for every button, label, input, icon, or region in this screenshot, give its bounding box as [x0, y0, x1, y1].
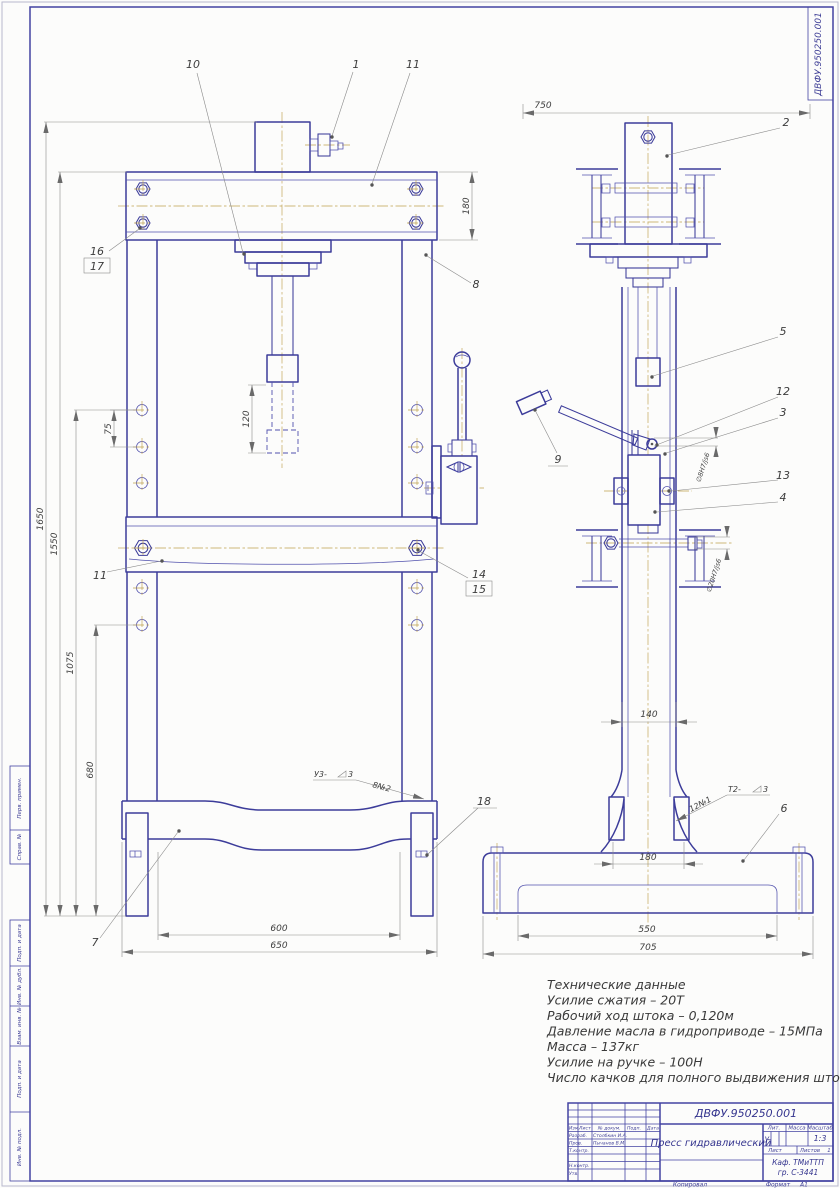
- mass-label: Масса: [788, 1126, 805, 1132]
- row-developed: Разраб.: [569, 1133, 587, 1139]
- scale-label: Масштаб: [807, 1126, 833, 1132]
- dim-overall-top: 750: [534, 101, 551, 111]
- callout-3: 3: [780, 406, 787, 419]
- tech-data-title: Технические данные: [547, 977, 686, 992]
- stamp-podp-data-1: Подп. и дата: [17, 924, 23, 962]
- drawing-sheet: ДВФУ.950250.001 Перв. примен. Справ. № П…: [0, 0, 840, 1188]
- weld-front: У3- 3 8№2: [313, 770, 424, 799]
- tech-data-line-4: Масса – 137кг: [547, 1039, 639, 1054]
- callout-5: 5: [780, 325, 787, 338]
- front-base: [122, 801, 437, 916]
- side-cylinder: [625, 123, 672, 244]
- callout-15: 15: [472, 583, 486, 596]
- org-line-2: гр. С-3441: [778, 1168, 819, 1177]
- dim-hole-pitch: 75: [104, 423, 114, 435]
- front-columns: [127, 240, 432, 801]
- weld-front-note: 8№2: [371, 780, 391, 793]
- dim-frame-height: 1550: [50, 532, 60, 555]
- callout-7: 7: [92, 936, 99, 949]
- callout-16: 16: [90, 245, 104, 258]
- row-tcontrol: Т.контр.: [569, 1148, 589, 1154]
- callout-13: 13: [776, 469, 790, 482]
- side-view: [483, 116, 813, 926]
- title-block-doc-number: ДВФУ.950250.001: [694, 1107, 797, 1120]
- weld-side: Т2- 3 12№1: [676, 785, 770, 821]
- weld-front-size: 3: [348, 770, 353, 779]
- row-checked: Пров.: [569, 1141, 582, 1147]
- weld-annotations: У3- 3 8№2 Т2- 3 12№1: [313, 770, 770, 821]
- title-block-title: Пресс гидравлический: [651, 1138, 772, 1149]
- dim-column-depth: 140: [640, 710, 657, 720]
- dim-base-overall: 705: [639, 943, 656, 953]
- lit-value: у: [764, 1134, 770, 1143]
- tech-data-line-5: Усилие на ручке – 100Н: [547, 1055, 703, 1070]
- tech-data: Технические данные Усилие сжатия – 20Т Р…: [546, 977, 840, 1085]
- side-column: [611, 287, 687, 797]
- side-pump: [516, 388, 674, 533]
- front-centerlines: [118, 112, 484, 548]
- sheet-label: Лист: [767, 1148, 783, 1154]
- lit-label: Лит.: [767, 1126, 780, 1132]
- stamp-sprav-no: Справ. №: [17, 833, 23, 860]
- stamp-vzam-inv: Взам. инв. №: [17, 1007, 23, 1045]
- sheets-value: 1: [827, 1148, 830, 1154]
- dim-pedestal-width: 180: [639, 853, 656, 863]
- dim-base-inner: 550: [638, 925, 655, 935]
- drawing-page: ДВФУ.950250.001 Перв. примен. Справ. № П…: [0, 0, 840, 1188]
- row-ncontrol: Н.контр.: [569, 1163, 590, 1169]
- weld-side-code: Т2-: [728, 785, 741, 794]
- dim-table-span: 600: [270, 924, 287, 934]
- callout-1: 1: [353, 58, 360, 71]
- stamp-perv-primen: Перв. примен.: [17, 777, 23, 819]
- callout-14: 14: [472, 568, 486, 581]
- dim-beam-height: 180: [462, 197, 472, 214]
- name-checked: Пычанов В.М.: [593, 1141, 626, 1147]
- callout-8: 8: [473, 278, 480, 291]
- callout-12: 12: [776, 385, 790, 398]
- dim-base-span: 650: [270, 941, 287, 951]
- front-pump: [426, 352, 477, 524]
- side-upper-brackets: [576, 169, 721, 287]
- callout-6: 6: [781, 802, 788, 815]
- tech-data-line-3: Давление масла в гидроприводе – 15МПа: [546, 1024, 823, 1039]
- callout-17: 17: [90, 260, 104, 273]
- callout-10: 10: [186, 58, 200, 71]
- front-table-beam: [126, 517, 437, 572]
- col-doc: № докум.: [597, 1126, 621, 1132]
- tech-data-line-1: Усилие сжатия – 20Т: [547, 993, 685, 1008]
- stamp-inv-dubl: Инв. № дубл.: [17, 967, 23, 1005]
- corner-stamp-number: ДВФУ.950250.001: [814, 12, 824, 97]
- left-margin-stamps: Перв. примен. Справ. № Подп. и дата Инв.…: [10, 766, 30, 1181]
- callout-11-top: 11: [406, 58, 420, 71]
- callout-18: 18: [477, 795, 491, 808]
- callout-11-mid: 11: [93, 569, 107, 582]
- row-approved: Утв.: [569, 1171, 579, 1177]
- dim-total-height: 1650: [36, 507, 46, 530]
- col-sign: Подп.: [627, 1126, 641, 1132]
- stamp-podp-data-2: Подп. и дата: [17, 1060, 23, 1098]
- callout-9: 9: [555, 453, 562, 466]
- name-developed: Столбкин И.А.: [593, 1133, 627, 1139]
- tech-data-line-6: Число качков для полного выдвижения штот…: [547, 1070, 840, 1085]
- callout-2: 2: [783, 116, 790, 129]
- weld-front-code: У3-: [314, 770, 327, 779]
- callout-4: 4: [780, 491, 787, 504]
- col-list: Лист: [578, 1126, 591, 1132]
- copied-label: Копировал: [673, 1182, 707, 1188]
- col-date: Дата: [646, 1126, 659, 1132]
- front-cylinder: [255, 122, 343, 172]
- dim-mid-height: 1075: [66, 651, 76, 674]
- format-label: Формат: [766, 1182, 791, 1188]
- weld-side-size: 3: [763, 785, 768, 794]
- format-value: А1: [799, 1182, 808, 1188]
- dim-pin-fit: ∅8H7/js6: [695, 452, 712, 483]
- tech-data-line-2: Рабочий ход штока – 0,120м: [547, 1008, 734, 1023]
- scale-value: 1:3: [814, 1134, 827, 1143]
- front-view: [118, 112, 484, 916]
- title-block: ДВФУ.950250.001 Пресс гидравлический Лит…: [568, 1103, 833, 1188]
- sheets-label: Листов: [799, 1148, 820, 1154]
- stamp-inv-podl: Инв. № подл.: [17, 1128, 23, 1166]
- dim-ram-stroke: 120: [242, 410, 252, 427]
- side-lower-brackets: [576, 530, 721, 587]
- weld-side-note: 12№1: [688, 795, 713, 814]
- org-line-1: Каф. ТМиТТП: [772, 1158, 824, 1167]
- dim-lower-height: 680: [86, 761, 96, 778]
